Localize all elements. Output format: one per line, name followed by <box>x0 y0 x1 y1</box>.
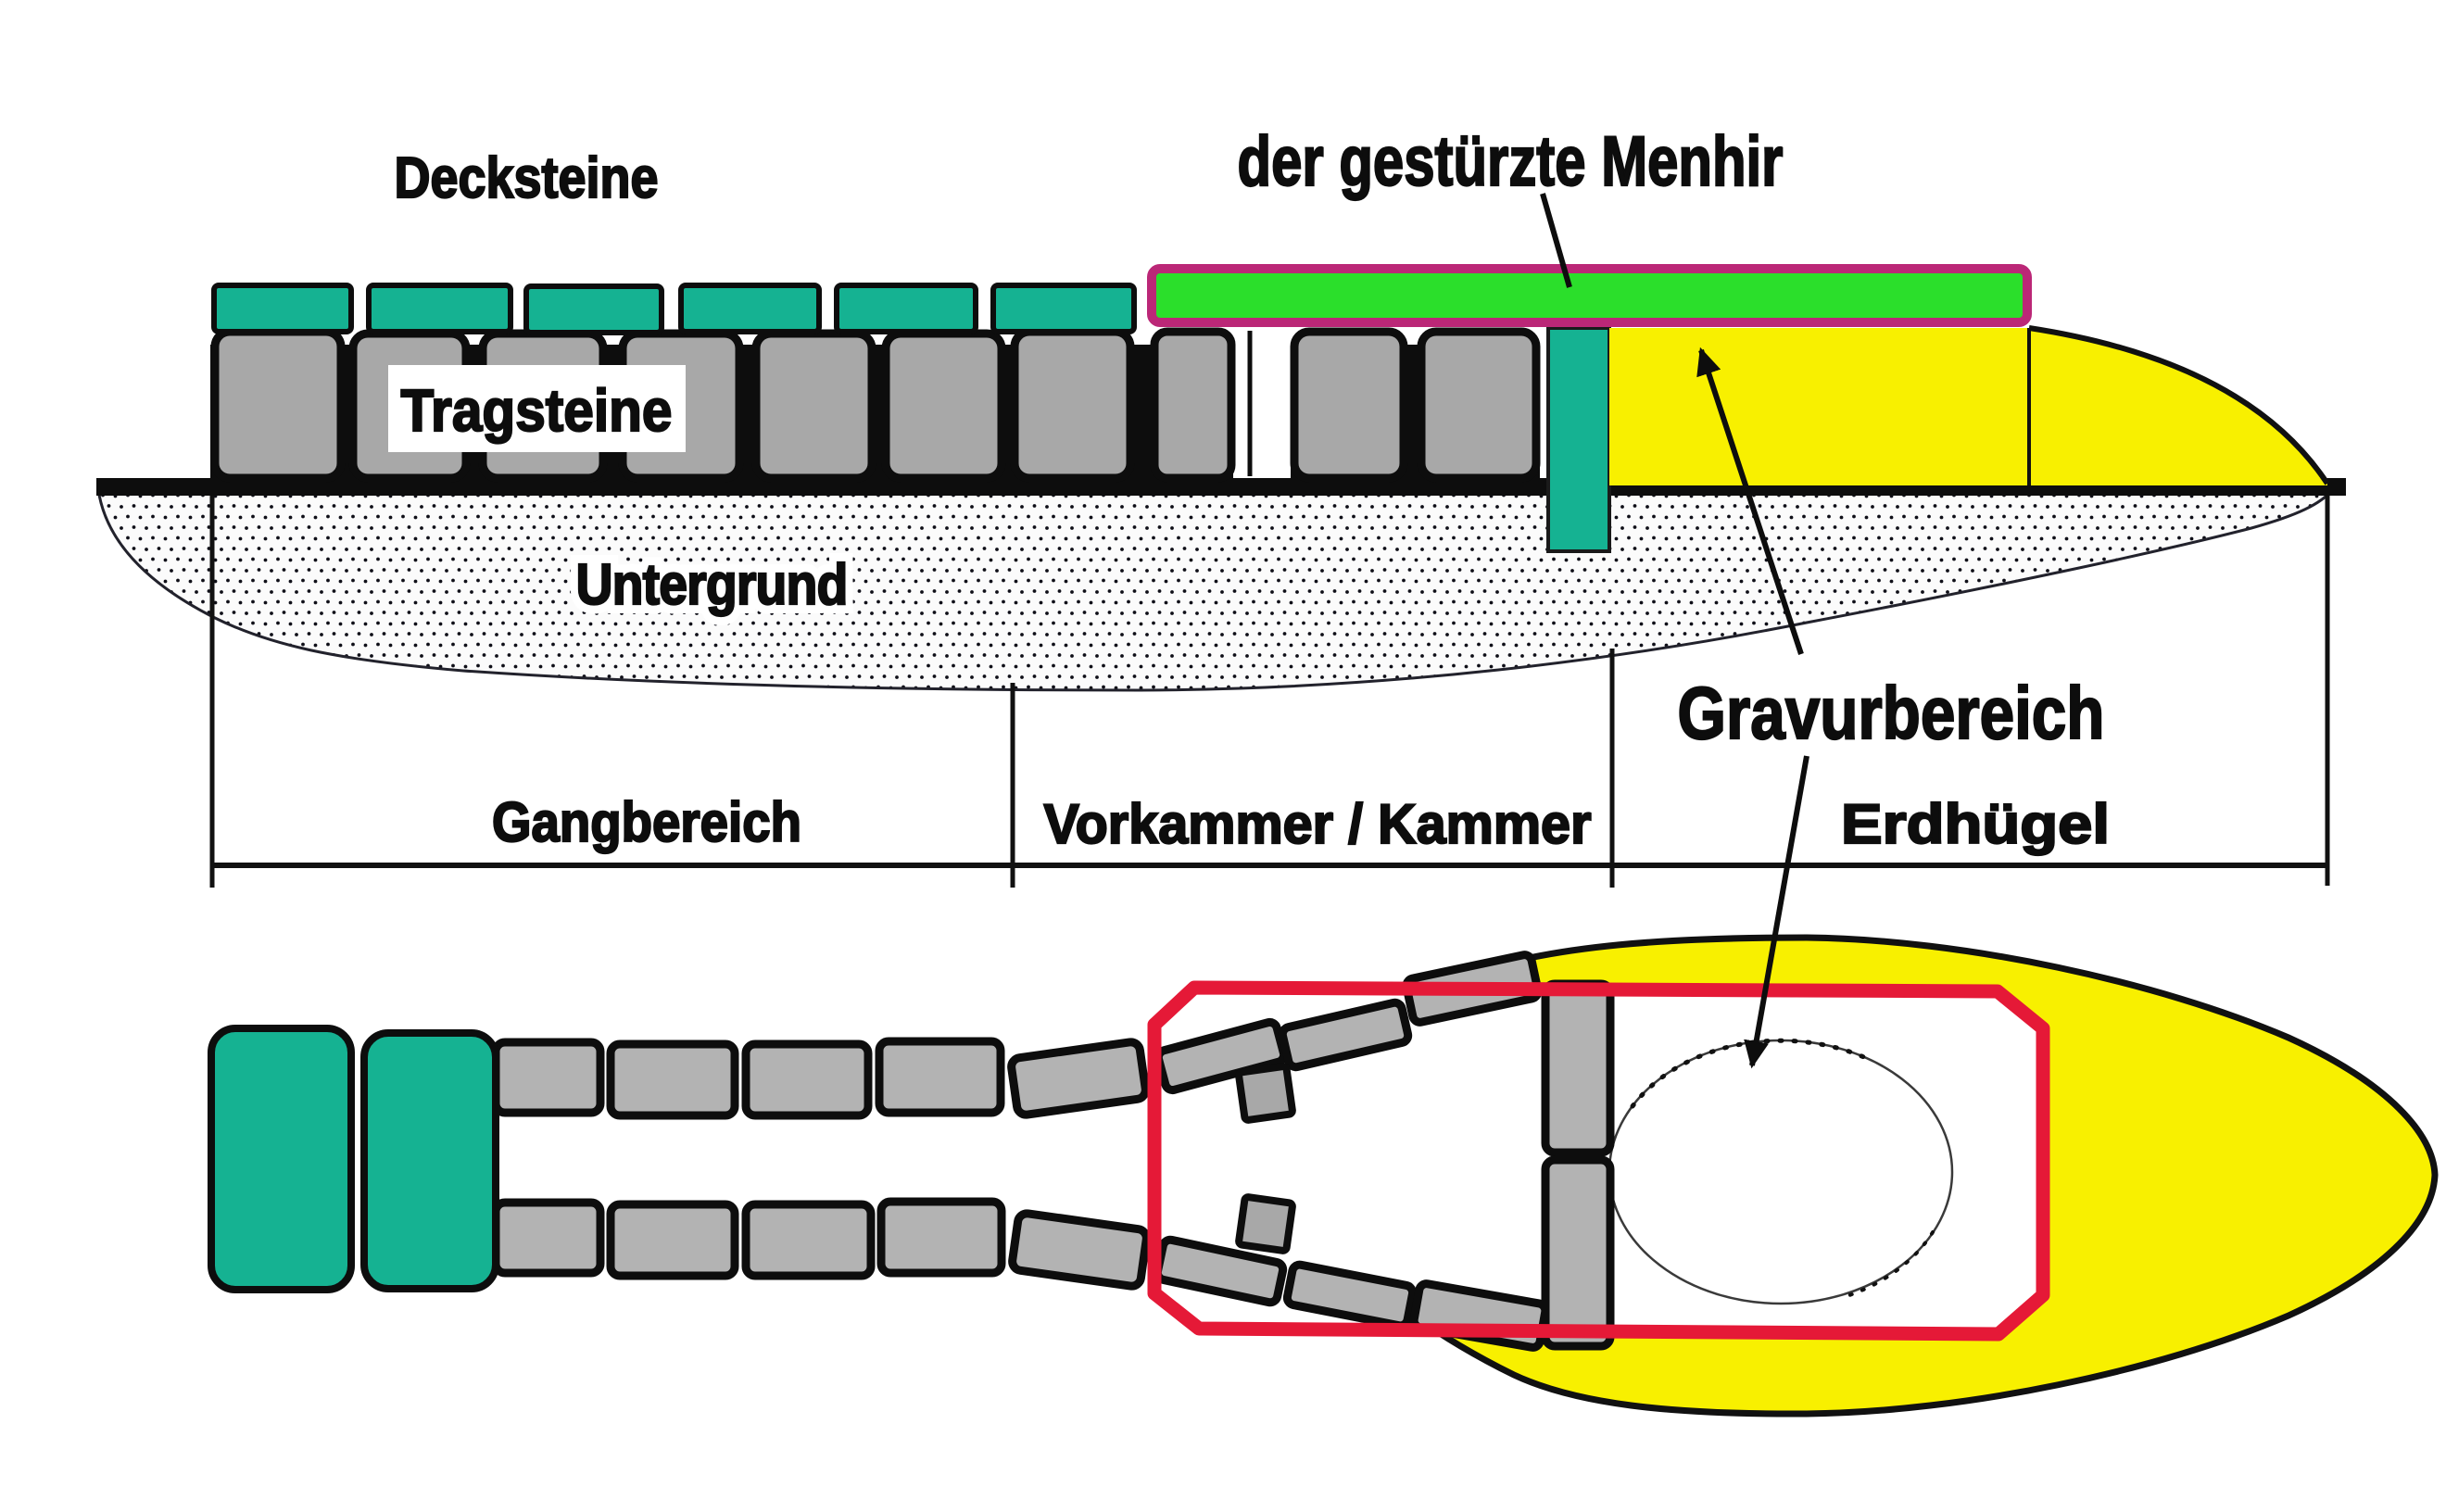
svg-text:Erdhügel: Erdhügel <box>1841 793 2110 855</box>
svg-text:Decksteine: Decksteine <box>395 146 659 210</box>
svg-text:Vorkammer / Kammer: Vorkammer / Kammer <box>1044 793 1592 855</box>
svg-text:Gravurbereich: Gravurbereich <box>1678 672 2105 754</box>
svg-text:der gestürzte Menhir: der gestürzte Menhir <box>1238 122 1784 201</box>
svg-text:Tragsteine: Tragsteine <box>401 377 673 444</box>
svg-text:Gangbereich: Gangbereich <box>492 791 801 853</box>
svg-text:Untergrund: Untergrund <box>576 553 848 617</box>
